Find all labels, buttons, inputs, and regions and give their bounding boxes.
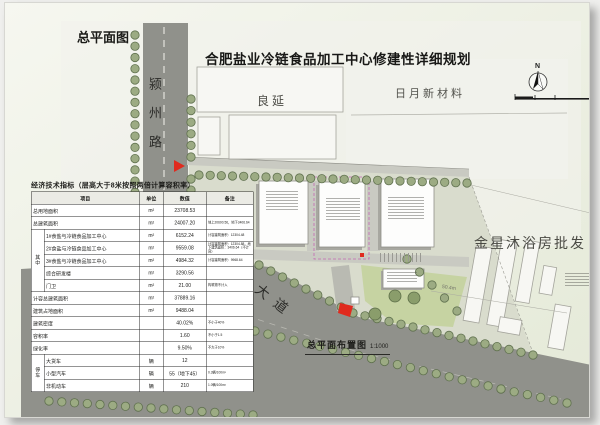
- table-body: 总用地面积m²23708.53总建筑面积m²24007.20地上20600.56…: [31, 204, 253, 392]
- indicator-value: 40.02%: [163, 317, 206, 330]
- indicator-value: 210: [163, 379, 206, 392]
- plan-main-title: 合肥盐业冷链食品加工中心修建性详细规划: [205, 48, 471, 68]
- indicator-value: 24007.20: [163, 217, 206, 230]
- indicator-item: 建筑占地面积: [31, 304, 139, 317]
- indicator-note: [206, 204, 253, 217]
- indicator-unit: [139, 317, 163, 330]
- indicator-item: 大货车: [44, 354, 139, 367]
- indicator-item: 绿化率: [31, 342, 139, 355]
- drawing-caption: 总平面布置图1:1000: [305, 335, 390, 355]
- indicator-unit: m²: [139, 279, 163, 292]
- table-row: 总建筑面积m²24007.20地上20600.56，地下3406.64: [31, 217, 253, 230]
- indicator-unit: 辆: [139, 354, 163, 367]
- north-arrow-label: N: [535, 63, 540, 70]
- indicator-table: 项目单位数值备注 总用地面积m²23708.53总建筑面积m²24007.20地…: [31, 192, 254, 393]
- indicator-unit: [139, 342, 163, 355]
- plan-sheet: 总平面图 合肥盐业冷链食品加工中心修建性详细规划 良延 日月新材料 金星沐浴房批…: [4, 2, 590, 418]
- table-row: 计容总建筑面积m²37889.16: [31, 292, 253, 305]
- indicator-item: 非机动车: [44, 379, 139, 392]
- indicator-value: 3290.56: [163, 267, 206, 280]
- table-row: 门卫m²21.00构筑物不计入: [31, 279, 253, 292]
- table-row: 综合研发楼m²3290.56: [31, 267, 253, 280]
- caption-scale: 1:1000: [370, 344, 388, 350]
- sheet-corner-title: 总平面图: [77, 27, 129, 46]
- indicator-value: 37889.16: [163, 292, 206, 305]
- building-annotation: [326, 198, 360, 222]
- site-red-dot: [360, 253, 364, 257]
- table-row: 小型汽车辆55（地下45）0.3辆/100m²: [31, 367, 253, 380]
- side-note-annotation: [565, 273, 590, 287]
- caption-text: 总平面布置图: [307, 340, 367, 350]
- indicator-item: 计容总建筑面积: [31, 292, 139, 305]
- table-row: 3#食盐与冷链食品加工中心m²4984.32计容建筑面积：9968.64: [31, 254, 253, 267]
- table-row: 2#食盐与冷链食品加工中心m²9559.08计容建筑面积：12304.88，地下…: [31, 242, 253, 255]
- indicator-item: 容积率: [31, 329, 139, 342]
- table-row: 绿化率9.50%不大于10%: [31, 342, 253, 355]
- indicator-table-block: 经济技术指标（层高大于8米按照两倍计算容积率） 项目单位数值备注 总用地面积m²…: [31, 180, 253, 392]
- indicator-table-title: 经济技术指标（层高大于8米按照两倍计算容积率）: [31, 180, 253, 190]
- indicator-item: 门卫: [44, 279, 139, 292]
- indicator-group: 停车: [31, 354, 44, 392]
- table-row: 非机动车辆2101.0辆/100m²: [31, 379, 253, 392]
- indicator-item: 总建筑面积: [31, 217, 139, 230]
- scan-background: { "sheet": { "corner_title": "总平面图", "ma…: [0, 0, 600, 425]
- indicator-value: 9.50%: [163, 342, 206, 355]
- table-row: 建筑密度40.02%不小于40%: [31, 317, 253, 330]
- indicator-value: 23708.53: [163, 204, 206, 217]
- gatehouse: [351, 297, 359, 304]
- indicator-note: 计容建筑面积：9968.64: [206, 254, 253, 267]
- table-row: 建筑占地面积m²9488.04: [31, 304, 253, 317]
- indicator-note: [206, 304, 253, 317]
- indicator-item: 建筑密度: [31, 317, 139, 330]
- indicator-unit: m²: [139, 242, 163, 255]
- indicator-item: 2#食盐与冷链食品加工中心: [44, 242, 139, 255]
- indicator-unit: m²: [139, 304, 163, 317]
- building-annotation: [388, 197, 424, 221]
- indicator-note: 计容建筑面积：12304.48: [206, 229, 253, 242]
- indicator-note: 计容建筑面积：12304.88，地下建筑面积：3406.64（不计容）: [206, 242, 253, 255]
- indicator-value: 12: [163, 354, 206, 367]
- column-header: 项目: [31, 192, 139, 205]
- indicator-unit: 辆: [139, 367, 163, 380]
- column-header: 数值: [163, 192, 206, 205]
- indicator-note: 不小于40%: [206, 317, 253, 330]
- indicator-note: [206, 292, 253, 305]
- indicator-note: 不小于1.5: [206, 329, 253, 342]
- indicator-value: 9559.08: [163, 242, 206, 255]
- indicator-note: [206, 267, 253, 280]
- indicator-item: 总用地面积: [31, 204, 139, 217]
- indicator-note: 1.0辆/100m²: [206, 379, 253, 392]
- neighbor-label-riyue: 日月新材料: [395, 85, 465, 101]
- indicator-unit: m²: [139, 217, 163, 230]
- column-header: 单位: [139, 192, 163, 205]
- indicator-item: 3#食盐与冷链食品加工中心: [44, 254, 139, 267]
- indicator-value: 9488.04: [163, 304, 206, 317]
- building-annotation: [387, 272, 417, 283]
- indicator-value: 1.60: [163, 329, 206, 342]
- indicator-note: [206, 354, 253, 367]
- indicator-unit: [139, 329, 163, 342]
- indicator-unit: m²: [139, 292, 163, 305]
- column-header: 备注: [206, 192, 253, 205]
- indicator-group: 其中: [31, 229, 44, 292]
- indicator-value: 55（地下45）: [163, 367, 206, 380]
- indicator-value: 4984.32: [163, 254, 206, 267]
- indicator-value: 21.00: [163, 279, 206, 292]
- indicator-item: 综合研发楼: [44, 267, 139, 280]
- building-annotation: [266, 191, 298, 211]
- indicator-unit: m²: [139, 267, 163, 280]
- indicator-note: 构筑物不计入: [206, 279, 253, 292]
- indicator-unit: m²: [139, 204, 163, 217]
- indicator-unit: m²: [139, 229, 163, 242]
- table-row: 其中1#食盐与冷链食品加工中心m²6152.24计容建筑面积：12304.48: [31, 229, 253, 242]
- indicator-note: 0.3辆/100m²: [206, 367, 253, 380]
- table-row: 停车大货车辆12: [31, 354, 253, 367]
- indicator-note: 地上20600.56，地下3406.64: [206, 217, 253, 230]
- indicator-note: 不大于10%: [206, 342, 253, 355]
- parking-hatch: [380, 253, 424, 262]
- road-label-yingzhou: 颍州路: [145, 77, 164, 164]
- neighbor-label-liangyan: 良延: [257, 92, 287, 109]
- indicator-value: 6152.24: [163, 229, 206, 242]
- neighbor-label-jinxing: 金星沐浴房批发: [474, 233, 586, 253]
- table-row: 总用地面积m²23708.53: [31, 204, 253, 217]
- indicator-item: 1#食盐与冷链食品加工中心: [44, 229, 139, 242]
- indicator-item: 小型汽车: [44, 367, 139, 380]
- table-header-row: 项目单位数值备注: [31, 192, 253, 205]
- indicator-unit: m²: [139, 254, 163, 267]
- indicator-unit: 辆: [139, 379, 163, 392]
- plan-layer: 总平面图 合肥盐业冷链食品加工中心修建性详细规划 良延 日月新材料 金星沐浴房批…: [4, 2, 590, 418]
- table-row: 容积率1.60不小于1.5: [31, 329, 253, 342]
